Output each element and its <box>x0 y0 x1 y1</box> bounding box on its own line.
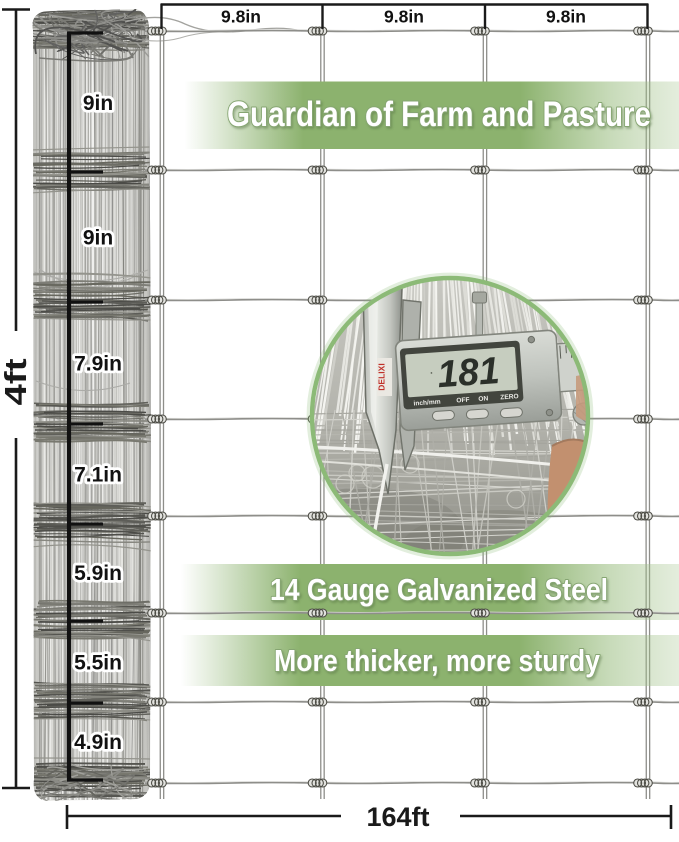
svg-text:9in: 9in <box>83 227 113 250</box>
svg-text:7.9in: 7.9in <box>74 353 122 376</box>
svg-text:7.1in: 7.1in <box>74 464 122 487</box>
svg-text:Guardian of Farm and Pasture: Guardian of Farm and Pasture <box>227 95 651 134</box>
svg-text:ZERO: ZERO <box>500 393 519 401</box>
svg-text:4ft: 4ft <box>0 359 33 406</box>
svg-text:OFF: OFF <box>456 397 470 405</box>
svg-text:5.9in: 5.9in <box>74 562 122 585</box>
svg-text:9.8in: 9.8in <box>384 7 424 27</box>
svg-text:9in: 9in <box>83 92 113 115</box>
svg-text:181: 181 <box>436 350 501 396</box>
svg-text:164ft: 164ft <box>366 802 429 832</box>
svg-text:ON: ON <box>478 395 489 403</box>
svg-text:9.8in: 9.8in <box>221 7 261 27</box>
svg-text:14 Gauge Galvanized Steel: 14 Gauge Galvanized Steel <box>270 572 608 607</box>
svg-text:9.8in: 9.8in <box>546 7 586 27</box>
svg-text:4.9in: 4.9in <box>74 731 122 754</box>
svg-text:5.5in: 5.5in <box>74 652 122 675</box>
svg-text:DELIXI: DELIXI <box>377 363 387 390</box>
svg-text:More thicker, more sturdy: More thicker, more sturdy <box>274 643 601 678</box>
